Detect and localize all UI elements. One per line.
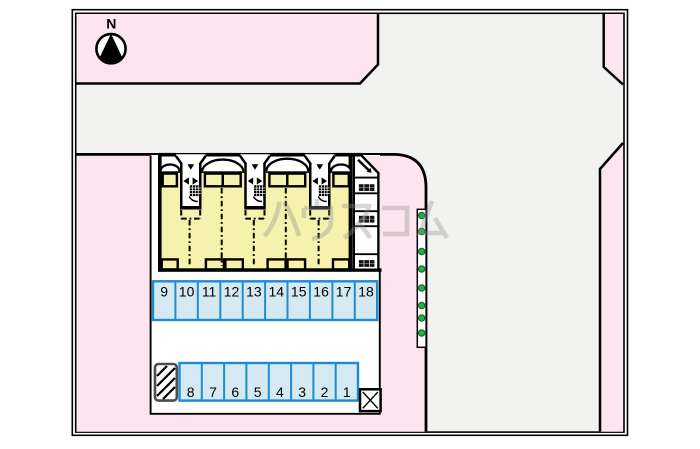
svg-text:14: 14 xyxy=(269,284,285,300)
svg-text:10: 10 xyxy=(179,284,195,300)
svg-text:4: 4 xyxy=(276,384,284,400)
svg-text:5: 5 xyxy=(254,384,262,400)
svg-text:2: 2 xyxy=(321,384,329,400)
svg-text:9: 9 xyxy=(160,284,168,300)
svg-text:1: 1 xyxy=(343,384,351,400)
svg-text:17: 17 xyxy=(336,284,352,300)
svg-text:12: 12 xyxy=(224,284,240,300)
svg-text:18: 18 xyxy=(358,284,374,300)
svg-text:16: 16 xyxy=(313,284,329,300)
svg-text:6: 6 xyxy=(231,384,239,400)
svg-text:8: 8 xyxy=(187,384,195,400)
svg-text:11: 11 xyxy=(202,284,217,300)
svg-text:3: 3 xyxy=(298,384,306,400)
svg-text:13: 13 xyxy=(246,284,262,300)
svg-text:N: N xyxy=(106,16,116,32)
svg-text:15: 15 xyxy=(291,284,307,300)
svg-text:7: 7 xyxy=(209,384,217,400)
